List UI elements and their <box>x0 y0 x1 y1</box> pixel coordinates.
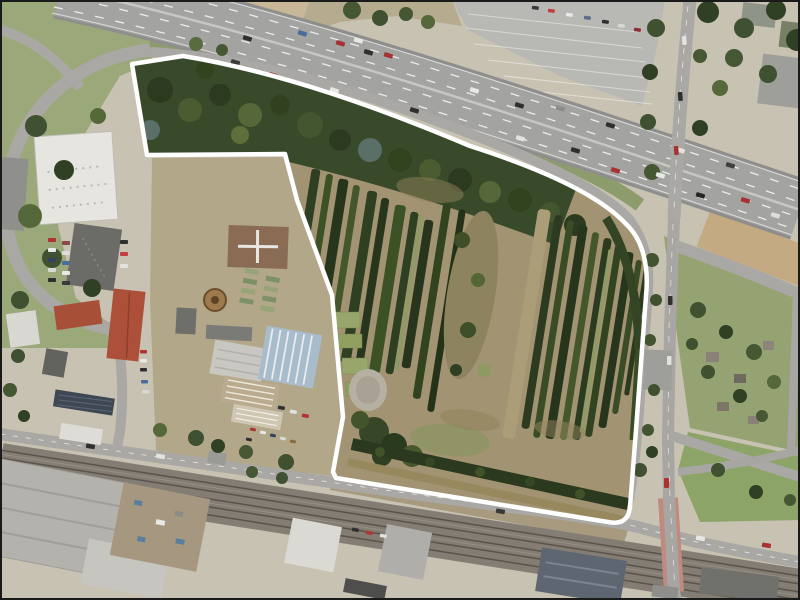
car <box>142 390 149 394</box>
garden-plot <box>338 334 362 348</box>
car <box>667 356 672 365</box>
tree <box>693 49 707 63</box>
hedge-tree <box>525 477 535 487</box>
car <box>120 264 128 268</box>
hedge-tree <box>575 489 585 499</box>
car <box>62 251 70 255</box>
tree <box>733 389 747 403</box>
building <box>284 518 342 573</box>
screenshot-root <box>0 0 800 600</box>
building <box>42 348 68 377</box>
tree <box>471 273 485 287</box>
tree <box>725 49 743 67</box>
car <box>140 368 147 372</box>
tree <box>450 364 462 376</box>
tree <box>644 334 656 346</box>
tree <box>759 65 777 83</box>
tree <box>642 424 654 436</box>
tree <box>11 349 25 363</box>
tree <box>454 232 470 248</box>
tree <box>147 77 173 103</box>
tree <box>756 410 768 422</box>
tree <box>712 80 728 96</box>
tree <box>508 188 532 212</box>
tree <box>209 84 231 106</box>
round-tank-center <box>211 296 219 304</box>
car <box>682 36 687 45</box>
tree <box>276 472 288 484</box>
tree <box>640 114 656 130</box>
tree <box>18 410 30 422</box>
car <box>62 281 70 285</box>
tree <box>697 1 719 23</box>
hedge-tree <box>475 467 485 477</box>
tree <box>18 204 42 228</box>
tree <box>766 0 786 20</box>
tree <box>784 494 796 506</box>
tree <box>189 37 203 51</box>
tree <box>216 44 228 56</box>
tree <box>746 344 762 360</box>
building <box>643 350 672 391</box>
tree <box>711 463 725 477</box>
building <box>206 325 253 341</box>
paved-area-inner <box>356 376 380 404</box>
building-roof <box>34 131 118 224</box>
tree <box>178 98 202 122</box>
tree <box>692 120 708 136</box>
car <box>48 258 56 262</box>
car <box>141 380 148 384</box>
garden-hut <box>763 341 774 350</box>
tree <box>83 279 101 297</box>
tree <box>90 108 106 124</box>
car <box>664 478 669 488</box>
tree <box>196 61 214 79</box>
tree <box>734 18 754 38</box>
tree <box>231 126 249 144</box>
tree <box>767 375 781 389</box>
tree <box>278 454 294 470</box>
tree <box>719 325 733 339</box>
tree <box>644 164 660 180</box>
tree <box>372 10 388 26</box>
shrub <box>477 363 491 377</box>
car <box>48 238 56 242</box>
car <box>668 296 673 305</box>
tree <box>460 322 476 338</box>
tree <box>642 64 658 80</box>
garden-center-building <box>227 225 288 269</box>
car <box>48 278 56 282</box>
tree <box>11 291 29 309</box>
tree <box>648 384 660 396</box>
garden-hut <box>734 374 746 383</box>
car <box>62 271 70 275</box>
building <box>175 307 196 334</box>
tree <box>358 138 382 162</box>
tree <box>421 15 435 29</box>
car <box>120 252 128 256</box>
hedge-tree <box>425 457 435 467</box>
car <box>48 268 56 272</box>
car <box>48 248 56 252</box>
tree <box>686 338 698 350</box>
tree <box>238 103 262 127</box>
tree <box>650 294 662 306</box>
garden-hut <box>706 352 719 362</box>
car <box>678 92 683 101</box>
car <box>62 261 70 265</box>
tree <box>343 1 361 19</box>
car <box>62 241 70 245</box>
roof-detail <box>256 230 258 263</box>
tree <box>646 446 658 458</box>
tree <box>647 19 665 37</box>
greenhouse <box>258 326 323 389</box>
tree <box>329 129 351 151</box>
tree <box>701 365 715 379</box>
tree <box>270 95 290 115</box>
tree <box>3 383 17 397</box>
hedge-tree <box>375 447 385 457</box>
car <box>140 359 147 363</box>
tree <box>749 485 763 499</box>
garden-hut <box>717 402 729 411</box>
garden-plot <box>334 312 360 328</box>
tree <box>54 160 74 180</box>
aerial-photo <box>0 0 800 600</box>
tree <box>388 148 412 172</box>
building <box>378 524 432 580</box>
tree <box>351 411 369 429</box>
tree <box>479 181 501 203</box>
car <box>140 350 147 354</box>
tree <box>153 423 167 437</box>
tree <box>188 430 204 446</box>
tree <box>399 7 413 21</box>
tree <box>211 439 225 453</box>
warehouse-building <box>34 131 118 224</box>
car <box>674 146 679 155</box>
tree <box>246 466 258 478</box>
tree <box>297 112 323 138</box>
building <box>6 310 40 348</box>
tree <box>239 445 253 459</box>
tree <box>25 115 47 137</box>
tree <box>690 302 706 318</box>
car <box>120 240 128 244</box>
